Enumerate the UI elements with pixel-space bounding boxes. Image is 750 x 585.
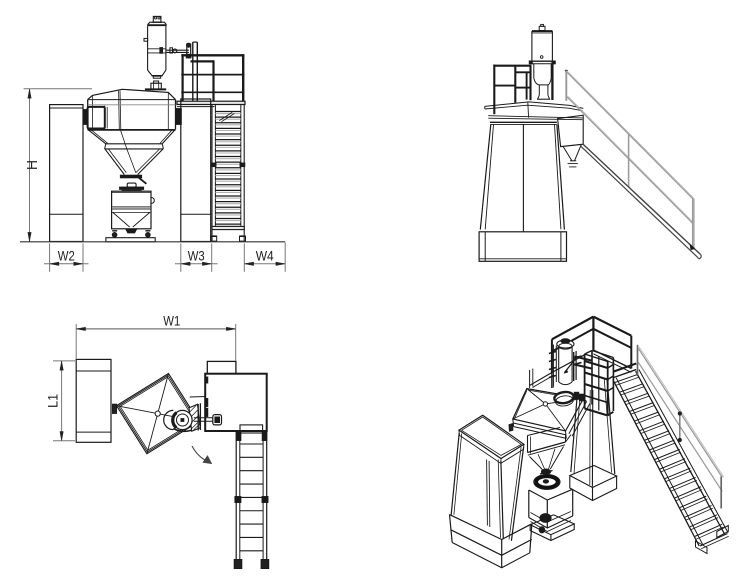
svg-text:W1: W1 [163,313,180,329]
svg-text:W4: W4 [256,247,274,263]
svg-text:H: H [24,160,41,170]
svg-text:W2: W2 [58,247,75,263]
svg-text:L1: L1 [45,394,61,408]
svg-text:W3: W3 [188,247,205,263]
